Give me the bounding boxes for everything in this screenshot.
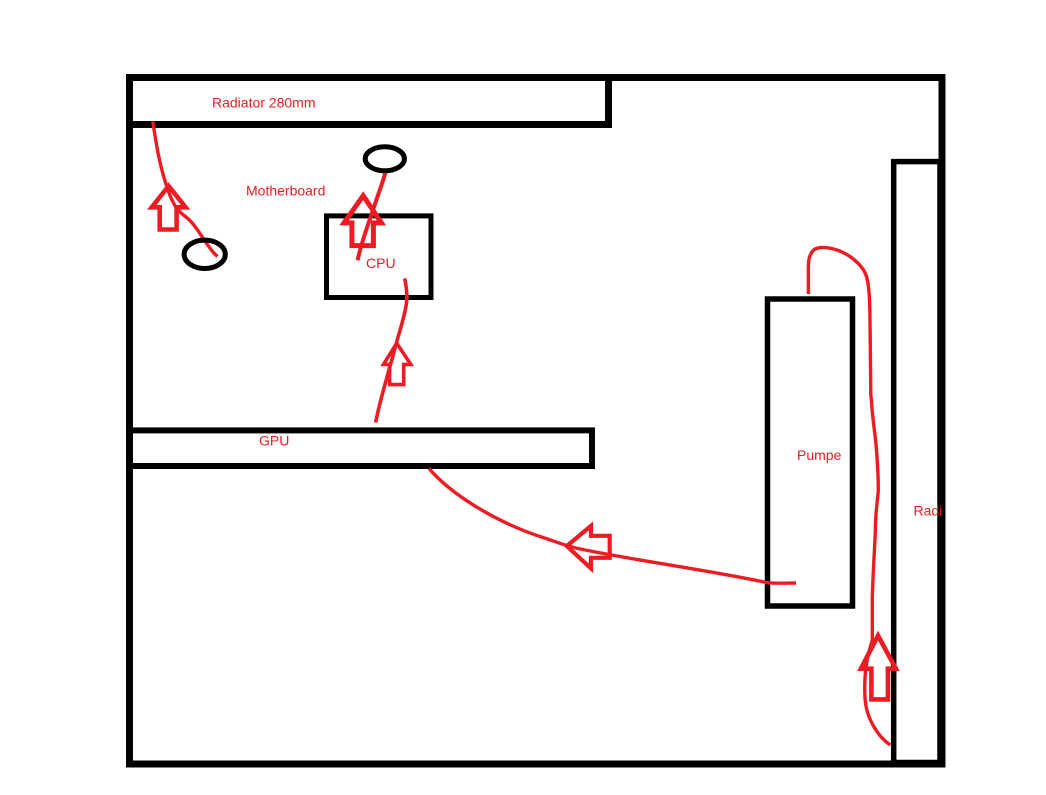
svg-text:Pumpe: Pumpe (797, 447, 842, 463)
svg-text:CPU: CPU (366, 255, 396, 271)
svg-text:Radiator 280mm: Radiator 280mm (212, 94, 316, 110)
svg-text:Motherboard: Motherboard (246, 182, 325, 198)
svg-text:GPU: GPU (259, 433, 289, 449)
svg-text:Radi: Radi (914, 503, 943, 519)
